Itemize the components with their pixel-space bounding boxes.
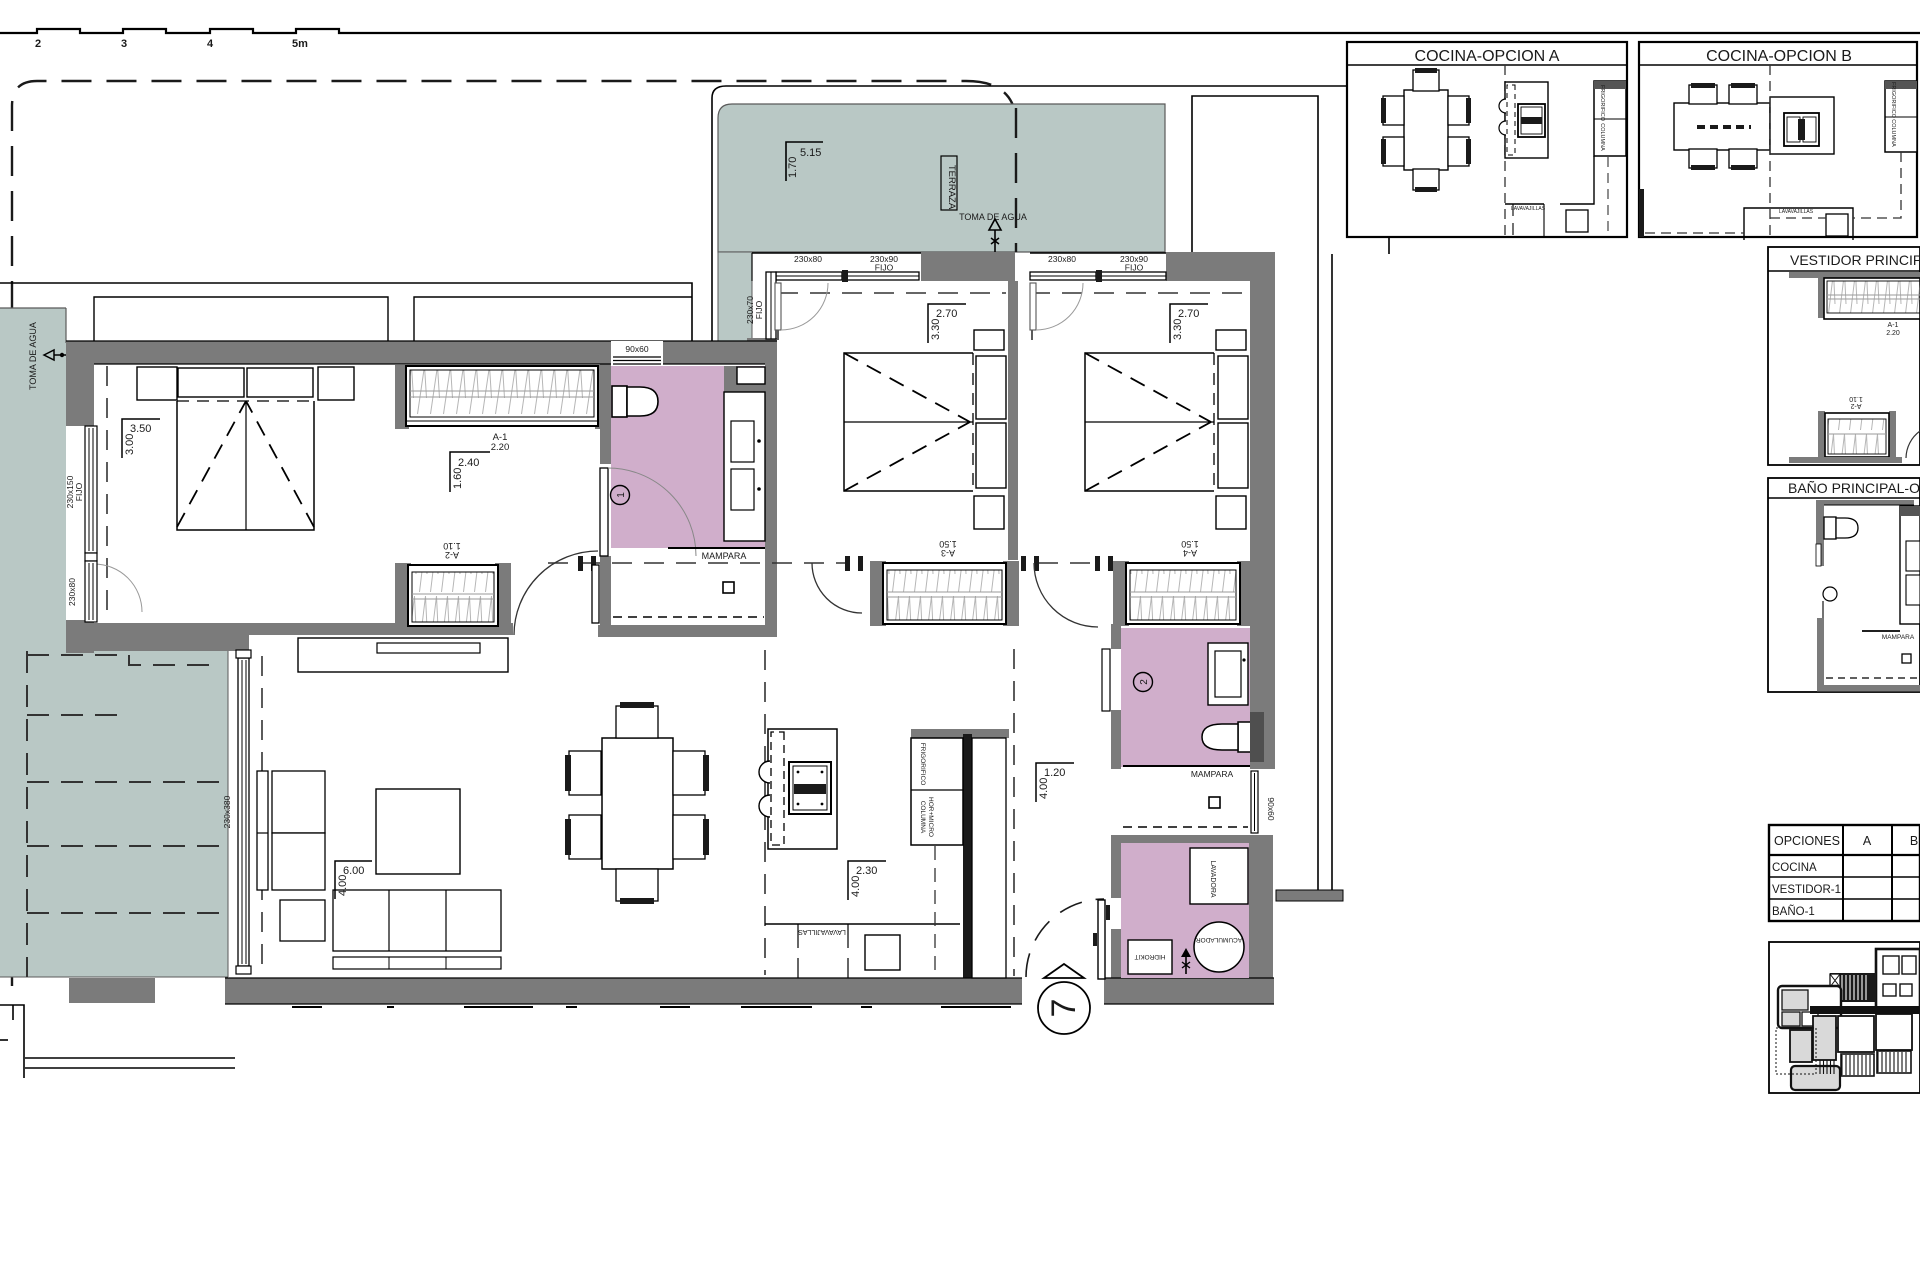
svg-text:TOMA DE AGUA: TOMA DE AGUA — [28, 322, 38, 390]
svg-text:1.10: 1.10 — [1849, 395, 1863, 402]
svg-text:FIJO: FIJO — [74, 482, 84, 501]
svg-text:5.15: 5.15 — [800, 147, 821, 159]
svg-text:LAVAVAJILLAS: LAVAVAJILLAS — [798, 928, 846, 935]
svg-text:1.10: 1.10 — [443, 541, 461, 551]
svg-text:B: B — [1910, 834, 1918, 848]
svg-text:FIJO: FIJO — [1125, 263, 1144, 273]
svg-text:BAÑO PRINCIPAL-OPC: BAÑO PRINCIPAL-OPC — [1788, 480, 1920, 496]
svg-text:COCINA: COCINA — [1772, 862, 1817, 874]
svg-text:COCINA-OPCION A: COCINA-OPCION A — [1415, 48, 1560, 65]
svg-text:2.30: 2.30 — [856, 865, 877, 877]
svg-text:1.50: 1.50 — [939, 539, 957, 549]
svg-text:4: 4 — [207, 38, 214, 50]
svg-text:FRIGORIFICO: FRIGORIFICO — [1599, 85, 1605, 122]
svg-text:1.60: 1.60 — [452, 468, 464, 489]
svg-text:A-1: A-1 — [1888, 322, 1899, 329]
svg-text:FIJO: FIJO — [754, 300, 764, 319]
svg-text:3.30: 3.30 — [1172, 319, 1184, 340]
svg-text:1.20: 1.20 — [1044, 767, 1065, 779]
svg-text:2.20: 2.20 — [491, 442, 510, 453]
svg-text:230x80: 230x80 — [67, 578, 77, 606]
svg-text:VESTIDOR PRINCIPAL-O: VESTIDOR PRINCIPAL-O — [1790, 252, 1920, 268]
svg-text:3.00: 3.00 — [124, 434, 136, 455]
svg-text:90x60: 90x60 — [1266, 797, 1276, 820]
svg-text:COLUMNA: COLUMNA — [919, 801, 926, 834]
svg-text:1.50: 1.50 — [1181, 539, 1199, 549]
svg-text:LAVADORA: LAVADORA — [1209, 860, 1216, 897]
svg-text:COLUMNA: COLUMNA — [1890, 119, 1896, 147]
svg-text:COLUMNA: COLUMNA — [1599, 123, 1605, 151]
svg-text:7: 7 — [1045, 999, 1083, 1018]
svg-text:2.20: 2.20 — [1886, 330, 1900, 337]
svg-text:2.40: 2.40 — [458, 457, 479, 469]
svg-text:ACUMULADOR: ACUMULADOR — [1196, 936, 1243, 943]
svg-text:4.00: 4.00 — [337, 875, 349, 896]
svg-text:2.70: 2.70 — [936, 308, 957, 320]
svg-text:90x60: 90x60 — [625, 344, 648, 354]
svg-text:A: A — [1863, 834, 1872, 848]
svg-text:3: 3 — [121, 38, 127, 50]
svg-text:LAVAVAJILLAS: LAVAVAJILLAS — [1511, 206, 1546, 212]
svg-text:2.70: 2.70 — [1178, 308, 1199, 320]
svg-text:COCINA-OPCION B: COCINA-OPCION B — [1706, 48, 1852, 65]
svg-text:A-2: A-2 — [1850, 402, 1861, 409]
svg-text:1.70: 1.70 — [787, 157, 799, 178]
svg-text:MAMPARA: MAMPARA — [1882, 634, 1915, 641]
svg-text:230x380: 230x380 — [222, 795, 232, 828]
svg-text:TERRAZA: TERRAZA — [946, 165, 957, 210]
svg-text:BAÑO-1: BAÑO-1 — [1772, 905, 1815, 918]
svg-text:4.00: 4.00 — [1038, 778, 1050, 799]
svg-text:2: 2 — [1139, 679, 1150, 685]
svg-text:230x80: 230x80 — [794, 254, 822, 264]
svg-text:4.00: 4.00 — [850, 876, 862, 897]
svg-text:MAMPARA: MAMPARA — [1191, 769, 1234, 779]
svg-text:VESTIDOR-1: VESTIDOR-1 — [1772, 884, 1841, 896]
svg-text:5m: 5m — [292, 38, 308, 50]
svg-text:TOMA DE AGUA: TOMA DE AGUA — [959, 212, 1027, 222]
svg-text:OPCIONES: OPCIONES — [1774, 834, 1840, 848]
svg-text:HIDROKIT: HIDROKIT — [1134, 953, 1165, 960]
svg-text:1: 1 — [616, 492, 627, 498]
svg-text:FIJO: FIJO — [875, 263, 894, 273]
svg-text:LAVAVAJILLAS: LAVAVAJILLAS — [1779, 209, 1814, 215]
svg-text:230x80: 230x80 — [1048, 254, 1076, 264]
svg-text:3.30: 3.30 — [930, 319, 942, 340]
svg-text:MAMPARA: MAMPARA — [702, 551, 747, 561]
svg-text:FRIGORIFICO: FRIGORIFICO — [919, 743, 926, 786]
svg-text:3.50: 3.50 — [130, 423, 151, 435]
svg-text:FRIGORIFICO: FRIGORIFICO — [1890, 82, 1896, 119]
svg-text:HOR+MICRO: HOR+MICRO — [927, 797, 934, 837]
svg-text:2: 2 — [35, 38, 41, 50]
